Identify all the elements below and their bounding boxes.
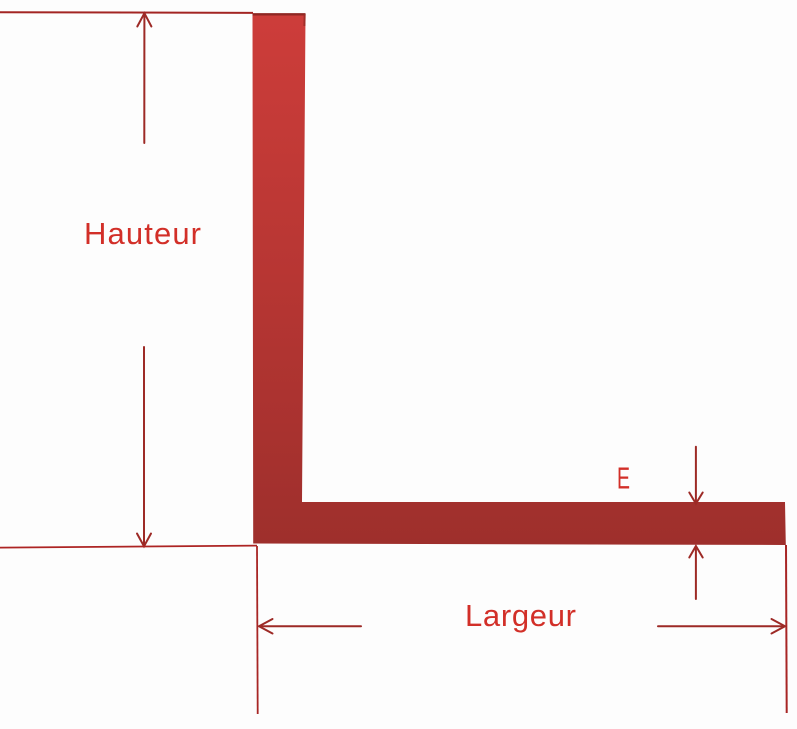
svg-text:Hauteur: Hauteur <box>84 216 201 251</box>
svg-text:Largeur: Largeur <box>465 598 576 633</box>
svg-text:E: E <box>617 461 630 496</box>
